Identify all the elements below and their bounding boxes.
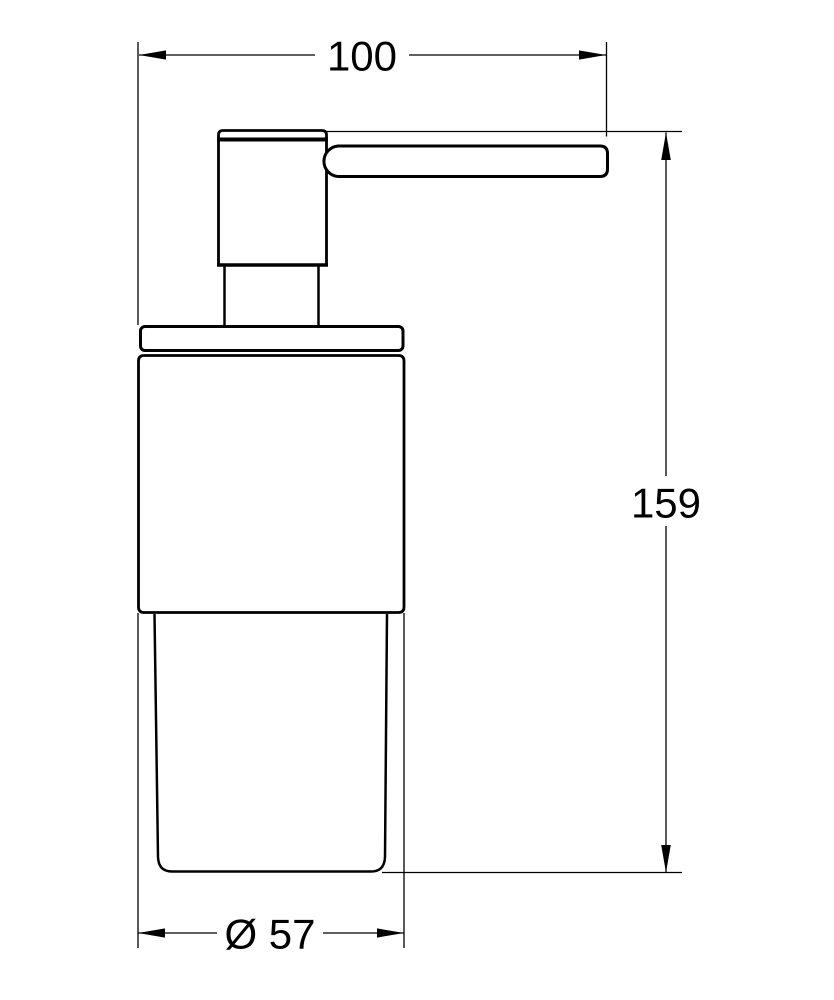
dispenser-outline — [139, 131, 608, 872]
pump-cap — [219, 131, 327, 266]
holder-body — [139, 356, 405, 613]
height-arrow-up-icon — [661, 133, 671, 161]
pump-spout — [324, 146, 608, 177]
height-dimension-label: 159 — [631, 480, 701, 527]
diameter-arrow-left-icon — [138, 928, 165, 937]
width-dimension-label: 100 — [327, 33, 397, 80]
technical-drawing-page: 100 159 Ø 57 — [0, 0, 834, 1000]
width-arrow-left-icon — [139, 50, 166, 59]
diameter-arrow-right-icon — [377, 928, 404, 937]
width-arrow-right-icon — [579, 50, 606, 59]
height-arrow-down-icon — [661, 845, 671, 873]
collar — [141, 327, 404, 351]
soap-dispenser-drawing: 100 159 Ø 57 — [0, 0, 834, 1000]
glass-liner — [155, 614, 388, 872]
pump-neck — [225, 265, 319, 328]
diameter-dimension-label: Ø 57 — [224, 911, 315, 958]
